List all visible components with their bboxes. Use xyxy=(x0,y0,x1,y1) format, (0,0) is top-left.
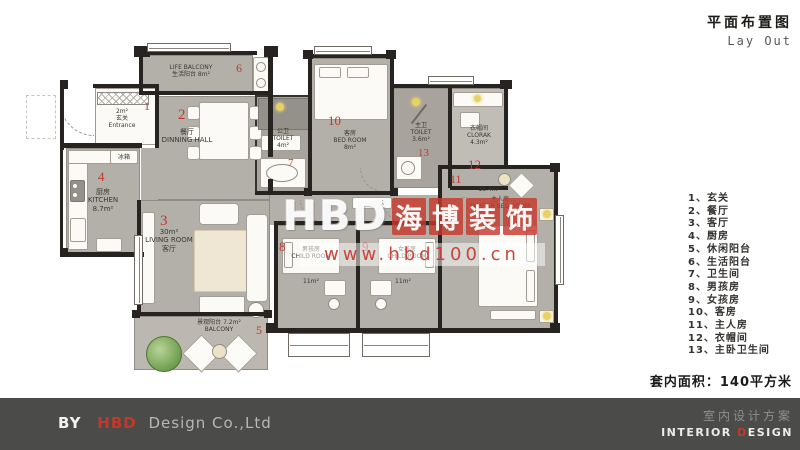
outside-shaft xyxy=(26,95,56,139)
fridge-label: 冰箱 xyxy=(110,154,138,161)
room-label-girl: 女孩房 CHILD ROOM xyxy=(382,246,432,260)
kitchen-sink2 xyxy=(96,238,122,252)
page-title-en: Lay Out xyxy=(707,34,792,48)
balcony-table xyxy=(212,344,227,359)
room-label-cloak: 衣帽间 CLORAK 4.3m² xyxy=(452,125,506,147)
room-num-dining: 2 xyxy=(178,108,186,123)
room-legend: 1、玄关 2、餐厅 3、客厅 4、厨房 5、休闲阳台 6、生活阳台 7、卫生间 … xyxy=(688,193,770,358)
shower-area xyxy=(258,98,309,130)
room-filler-dining xyxy=(141,148,158,202)
bay-window-top-balcony xyxy=(147,43,231,52)
room-label-life-balcony: LIFE BALCONY 生活阳台 8m² xyxy=(148,64,234,78)
sofa xyxy=(246,214,268,302)
room-label-toilet-public: 公卫 TOILET 4m² xyxy=(258,128,308,150)
kitchen-sink xyxy=(70,218,86,242)
legend-item: 6、生活阳台 xyxy=(688,257,770,270)
legend-item: 4、厨房 xyxy=(688,231,770,244)
footer-tagline-cn: 室内设计方案 xyxy=(661,407,793,424)
footer-brand: HBD xyxy=(97,414,136,432)
room-label-balcony: 景观阳台 7.2m² BALCONY xyxy=(184,319,254,333)
legend-item: 1、玄关 xyxy=(688,193,770,206)
room-num-boy: 8 xyxy=(279,240,286,253)
bay-window-guest xyxy=(314,46,372,55)
room-label-boy: 男孩房 CHILD ROOM xyxy=(286,246,336,260)
room-num-life-balcony: 6 xyxy=(236,62,242,74)
master-bench xyxy=(490,310,536,320)
armchair xyxy=(199,203,239,225)
room-label-living: 30m² LIVING ROOM 客厅 xyxy=(138,228,200,253)
room-num-girl: 9 xyxy=(362,240,369,253)
room-num-toilet-public: 7 xyxy=(288,158,294,169)
room-label-kitchen: 厨房 KITCHEN 8.7m² xyxy=(78,188,128,213)
room-num-guest: 10 xyxy=(328,114,341,127)
page-title: 平面布置图 xyxy=(707,12,792,32)
footer-bar: BY HBD Design Co.,Ltd 室内设计方案 INTERIOR DE… xyxy=(0,398,800,450)
bay-window-boy xyxy=(288,333,350,357)
legend-item: 9、女孩房 xyxy=(688,295,770,308)
room-num-living: 3 xyxy=(160,214,168,229)
legend-item: 13、主卧卫生间 xyxy=(688,345,770,358)
window-master xyxy=(555,215,564,285)
room-label-entrance: 2m² 玄关 Entrance xyxy=(98,108,146,130)
room-num-toilet-master: 13 xyxy=(418,148,429,159)
bay-window-cloak xyxy=(428,76,474,85)
room-label-dining: 餐厅 DINNING HALL xyxy=(156,128,218,145)
room-label-girl-area: 11m² xyxy=(390,278,416,285)
room-num-master: 11 xyxy=(450,173,462,185)
legend-item: 7、卫生间 xyxy=(688,269,770,282)
footer-tagline-en: INTERIOR DESIGN xyxy=(661,426,793,439)
rug xyxy=(194,230,248,292)
footer-company: BY HBD Design Co.,Ltd xyxy=(58,414,272,432)
room-label-toilet-master: 主卫 TOILET 3.6m² xyxy=(396,122,446,144)
legend-item: 8、男孩房 xyxy=(688,282,770,295)
floor-plan: 冰箱 xyxy=(60,40,565,380)
title-block: 平面布置图 Lay Out xyxy=(707,12,792,48)
shower-light-13 xyxy=(412,98,420,106)
girl-desk xyxy=(370,280,392,296)
legend-item: 10、客房 xyxy=(688,307,770,320)
area-note: 套内面积：140平方米 xyxy=(650,371,792,390)
tv-cabinet xyxy=(142,212,155,304)
legend-item: 3、客厅 xyxy=(688,218,770,231)
plant xyxy=(146,336,182,372)
footer-company-name: Design Co.,Ltd xyxy=(149,414,272,432)
boy-desk xyxy=(324,280,346,296)
legend-item: 11、主人房 xyxy=(688,320,770,333)
legend-item: 2、餐厅 xyxy=(688,206,770,219)
entry-door-arc xyxy=(60,102,94,136)
room-label-guest: 客房 BED ROOM 8m² xyxy=(318,130,382,152)
bay-window-girl xyxy=(362,333,430,357)
room-label-master-area: 18.4m² xyxy=(474,186,504,193)
room-label-master: 主人房 MASTER BED ROOM xyxy=(458,196,542,210)
room-label-boy-area: 11m² xyxy=(298,278,324,285)
room-num-kitchen: 4 xyxy=(98,170,105,183)
footer-tagline: 室内设计方案 INTERIOR DESIGN xyxy=(661,407,793,439)
room-num-cloak: 12 xyxy=(468,158,481,171)
legend-item: 5、休闲阳台 xyxy=(688,244,770,257)
footer-by: BY xyxy=(58,414,81,432)
room-num-balcony: 5 xyxy=(256,324,262,336)
shower-light xyxy=(276,103,284,111)
legend-item: 12、衣帽间 xyxy=(688,333,770,346)
